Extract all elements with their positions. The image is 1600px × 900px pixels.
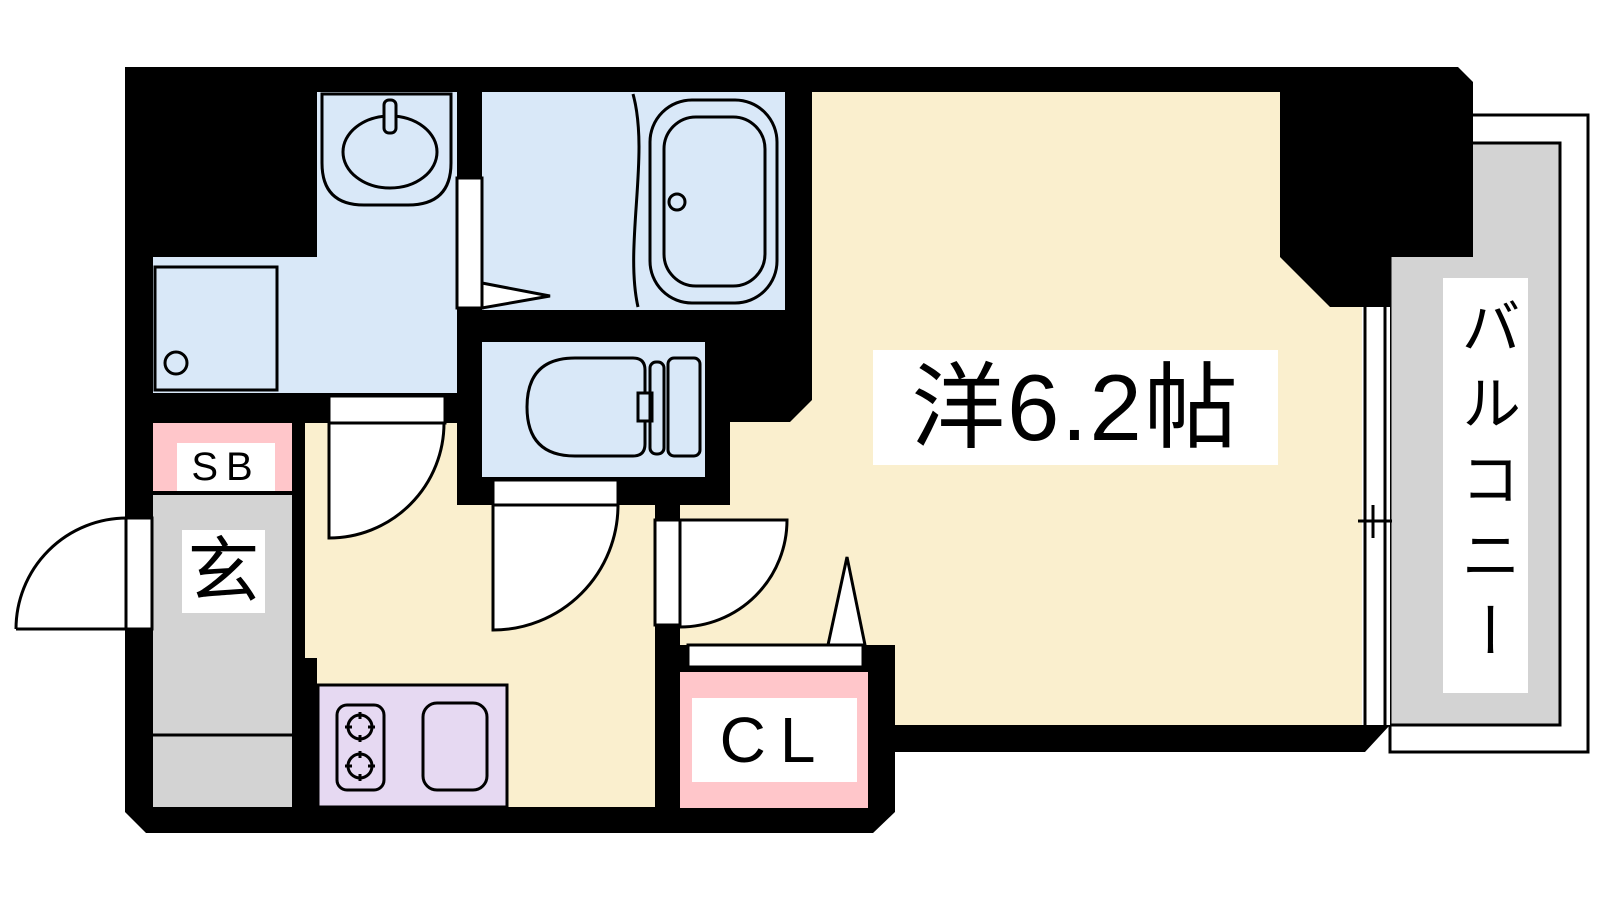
balcony-label: バルコニー bbox=[1443, 278, 1528, 693]
closet-opening bbox=[688, 645, 863, 667]
toilet-door-opening bbox=[493, 480, 618, 505]
shoe-box-label: SB bbox=[177, 443, 275, 491]
washbasin-faucet-icon bbox=[384, 100, 396, 133]
entrance-door-arc bbox=[16, 518, 127, 629]
entrance-label: 玄 bbox=[182, 530, 265, 613]
floor-plan: 洋6.2帖 バルコニー 玄 SB CL bbox=[0, 0, 1600, 900]
entrance-door bbox=[16, 518, 152, 629]
bathroom-door-opening bbox=[457, 178, 482, 308]
balcony-window bbox=[1358, 307, 1392, 725]
closet-label: CL bbox=[692, 698, 857, 782]
main-room-label: 洋6.2帖 bbox=[873, 350, 1278, 465]
room-door-leaf bbox=[655, 520, 680, 625]
washroom-door-opening bbox=[329, 396, 445, 423]
entrance-door-leaf bbox=[126, 518, 152, 629]
